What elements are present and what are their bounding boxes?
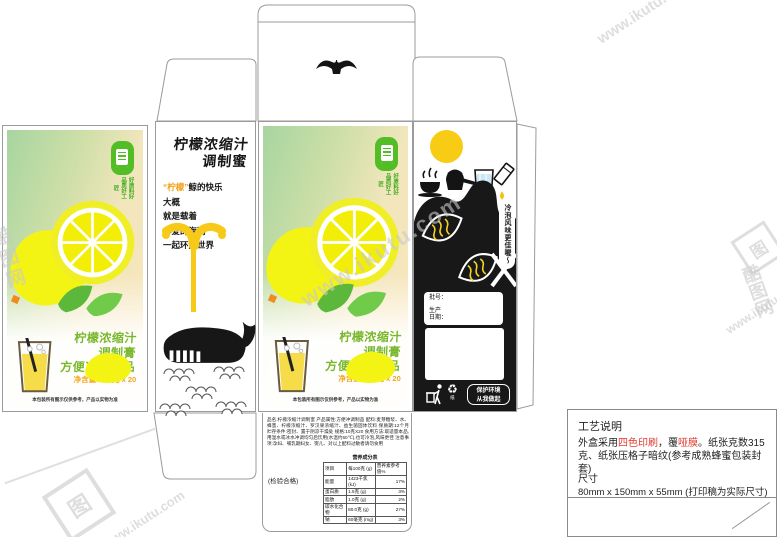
- panel-back-black: 冷泡风味更佳喔～ 批号： 生产日期： ♻纸 保护环境从我做起: [413, 121, 517, 412]
- side-title: 柠檬浓缩汁调制蜜: [172, 136, 250, 170]
- table-row: 碳水化合物80.0克 (g)27%: [324, 503, 407, 516]
- panel-front-main: 好原料好品质好工匠 柠檬浓缩汁调制膏方便冲调制品: [258, 121, 413, 412]
- whale-spout-icon: [160, 220, 230, 312]
- glue-flap: [517, 124, 536, 409]
- eco-slogan-box: 保护环境从我做起: [467, 384, 510, 405]
- fold-corner-line: [732, 502, 770, 529]
- recycle-icon: ♻纸: [447, 383, 458, 400]
- bottom-flap-info: 品名:柠檬浓缩汁调制蜜 产品属性:方便冲调制品 配料:麦芽糖浆、水、蜂蜜、柠檬浓…: [262, 413, 412, 532]
- size-value: 80mm x 150mm x 55mm (打印稿为实际尺寸): [578, 484, 768, 498]
- lemon-stem-icon: [268, 293, 277, 302]
- badge-logo-icon: [375, 137, 398, 171]
- prod-date-label: 生产日期：: [429, 308, 503, 323]
- lemon-slice-icon: [308, 196, 401, 289]
- bottom-flap-side: [154, 413, 256, 479]
- leaves-icon: [315, 278, 390, 317]
- front-disclaimer: 本包装所有图示仅供参考，产品以实物为准: [263, 397, 408, 403]
- table-row: 能量1423千焦 (kJ)17%: [324, 475, 407, 488]
- quality-badge: 好原料好品质好工匠: [110, 141, 135, 204]
- nutrition-title: 营养成分表: [323, 454, 407, 461]
- wave-icon: [158, 401, 202, 417]
- tidyman-icon: [426, 384, 444, 405]
- wave-icon: [184, 384, 228, 400]
- wave-icon: [212, 364, 256, 380]
- size-label: 尺寸: [578, 470, 598, 485]
- slogan-highlight: “柠檬”: [163, 182, 189, 192]
- process-notes: 工艺说明 外盒采用四色印刷，覆哑膜。纸张克数315克、纸张压格子暗纹(参考成熟蜂…: [567, 409, 777, 537]
- nutrition-table: 营养成分表 项目每100克 (g)营养素参考值% 能量1423千焦 (kJ)17…: [323, 454, 407, 525]
- top-flap-left: [157, 59, 256, 121]
- table-row: 钠60毫克 (mg)3%: [324, 516, 407, 524]
- panel-front-preview: 好原料好品质好工匠 柠檬浓缩汁调制膏方便冲调制品: [2, 125, 148, 412]
- notes-title: 工艺说明: [578, 418, 622, 434]
- front-gradient-bg: 好原料好品质好工匠 柠檬浓缩汁调制膏方便冲调制品: [7, 130, 143, 407]
- panel-side-whale: 柠檬浓缩汁调制蜜 “柠檬”鲸的快乐 大概就是载着 心爱的海鸥一起环游世界: [155, 121, 256, 412]
- table-row: 蛋白质1.5克 (g)3%: [324, 488, 407, 496]
- drink-cup-icon: [273, 337, 311, 393]
- badge-text: 好原料好品质好工匠: [111, 177, 134, 199]
- table-row: 脂肪1.0克 (g)2%: [324, 496, 407, 504]
- wave-icon: [214, 399, 258, 415]
- eco-icons-row: ♻纸 保护环境从我做起: [414, 384, 517, 408]
- packaging-dieline-canvas: 好原料好品质好工匠 柠檬浓缩汁调制膏方便冲调制品: [0, 0, 777, 537]
- barcode-area: [425, 328, 504, 380]
- notes-body: 外盒采用四色印刷，覆哑膜。纸张克数315克、纸张压格子暗纹(参考成熟蜂蜜包装封套…: [578, 437, 770, 476]
- badge-logo-icon: [111, 141, 134, 175]
- batch-box: 批号： 生产日期：: [424, 292, 503, 325]
- top-flap-right: [413, 57, 517, 121]
- whale-icon: [160, 308, 256, 366]
- front-disclaimer: 本包装所有图示仅供参考，产品以实物为准: [7, 397, 143, 403]
- fine-print: 品名:柠檬浓缩汁调制蜜 产品属性:方便冲调制品 配料:麦芽糖浆、水、蜂蜜、柠檬浓…: [267, 417, 409, 447]
- quality-badge: 好原料好品质好工匠: [374, 137, 399, 200]
- notes-divider: [568, 497, 776, 498]
- inspection-note: (检验合格): [268, 475, 298, 485]
- drink-cup-icon: [17, 338, 52, 393]
- badge-text: 好原料好品质好工匠: [376, 173, 399, 195]
- batch-label: 批号：: [429, 295, 503, 303]
- lemon-slice-icon: [49, 199, 136, 286]
- leaves-icon: [56, 280, 127, 316]
- cold-brew-bubble: 冷泡风味更佳喔～: [499, 199, 515, 269]
- wave-icon: [162, 366, 206, 382]
- front-gradient-bg: 好原料好品质好工匠 柠檬浓缩汁调制膏方便冲调制品: [263, 126, 408, 407]
- lemon-stem-icon: [11, 295, 20, 304]
